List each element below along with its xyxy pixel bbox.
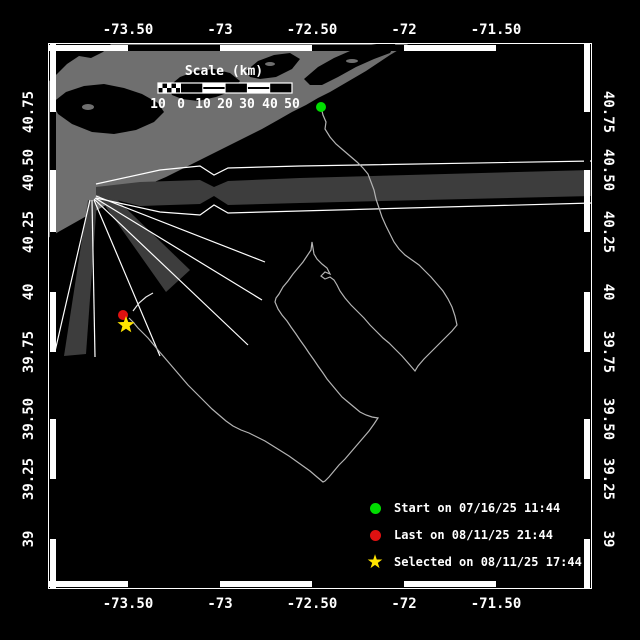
scale-bar-cell-stripe	[247, 87, 269, 89]
scale-bar-checker-cell	[167, 83, 172, 88]
track-map-screen: Scale (km) Start on 07/16/25 11:44Last o…	[0, 0, 640, 640]
frame-border-segment-right	[584, 43, 590, 112]
frame-border-segment-right	[584, 539, 590, 589]
island	[346, 59, 358, 63]
frame-border-segment-right	[584, 479, 590, 539]
frame-border-segment-left	[50, 539, 56, 589]
frame-border-segment-top	[220, 45, 312, 51]
map-plot	[0, 0, 640, 640]
frame-border-segment-right	[584, 419, 590, 479]
frame-border-segment-bottom	[220, 581, 312, 587]
frame-border-segment-left	[50, 170, 56, 232]
frame-border-segment-bottom	[48, 581, 128, 587]
frame-border-segment-top	[496, 45, 592, 51]
scale-bar-checker-cell	[176, 83, 181, 88]
island	[82, 104, 94, 110]
frame-border-segment-top	[128, 45, 220, 51]
frame-border-segment-top	[48, 45, 128, 51]
scale-bar-cell	[270, 83, 292, 93]
scale-bar-checker-cell	[172, 83, 177, 88]
frame-border-segment-left	[50, 43, 56, 112]
frame-border-segment-top	[404, 45, 496, 51]
scale-bar-cell-stripe	[203, 87, 225, 89]
scale-bar-checker-cell	[176, 88, 181, 93]
frame-border-segment-right	[584, 170, 590, 232]
scale-bar-checker-cell	[167, 88, 172, 93]
frame-border-segment-bottom	[404, 581, 496, 587]
frame-border-segment-bottom	[312, 581, 404, 587]
scale-bar-checker-cell	[163, 83, 168, 88]
scale-bar-cell	[181, 83, 203, 93]
scale-bar-checker-cell	[158, 88, 163, 93]
scale-bar-checker-cell	[163, 88, 168, 93]
scale-bar-checker-cell	[172, 88, 177, 93]
frame-border-segment-top	[312, 45, 404, 51]
scale-bar-checker-cell	[158, 83, 163, 88]
frame-border-segment-left	[50, 112, 56, 170]
scale-bar-cell	[225, 83, 247, 93]
frame-border-segment-left	[50, 352, 56, 419]
start-marker	[316, 102, 326, 112]
frame-border-segment-left	[50, 479, 56, 539]
frame-border-segment-left	[50, 232, 56, 292]
frame-border-segment-right	[584, 232, 590, 292]
frame-border-segment-right	[584, 352, 590, 419]
frame-border-segment-bottom	[128, 581, 220, 587]
frame-border-segment-right	[584, 112, 590, 170]
frame-border-segment-left	[50, 419, 56, 479]
island	[265, 62, 275, 66]
frame-border-segment-left	[50, 292, 56, 352]
frame-border-segment-right	[584, 292, 590, 352]
frame-border-segment-bottom	[496, 581, 592, 587]
